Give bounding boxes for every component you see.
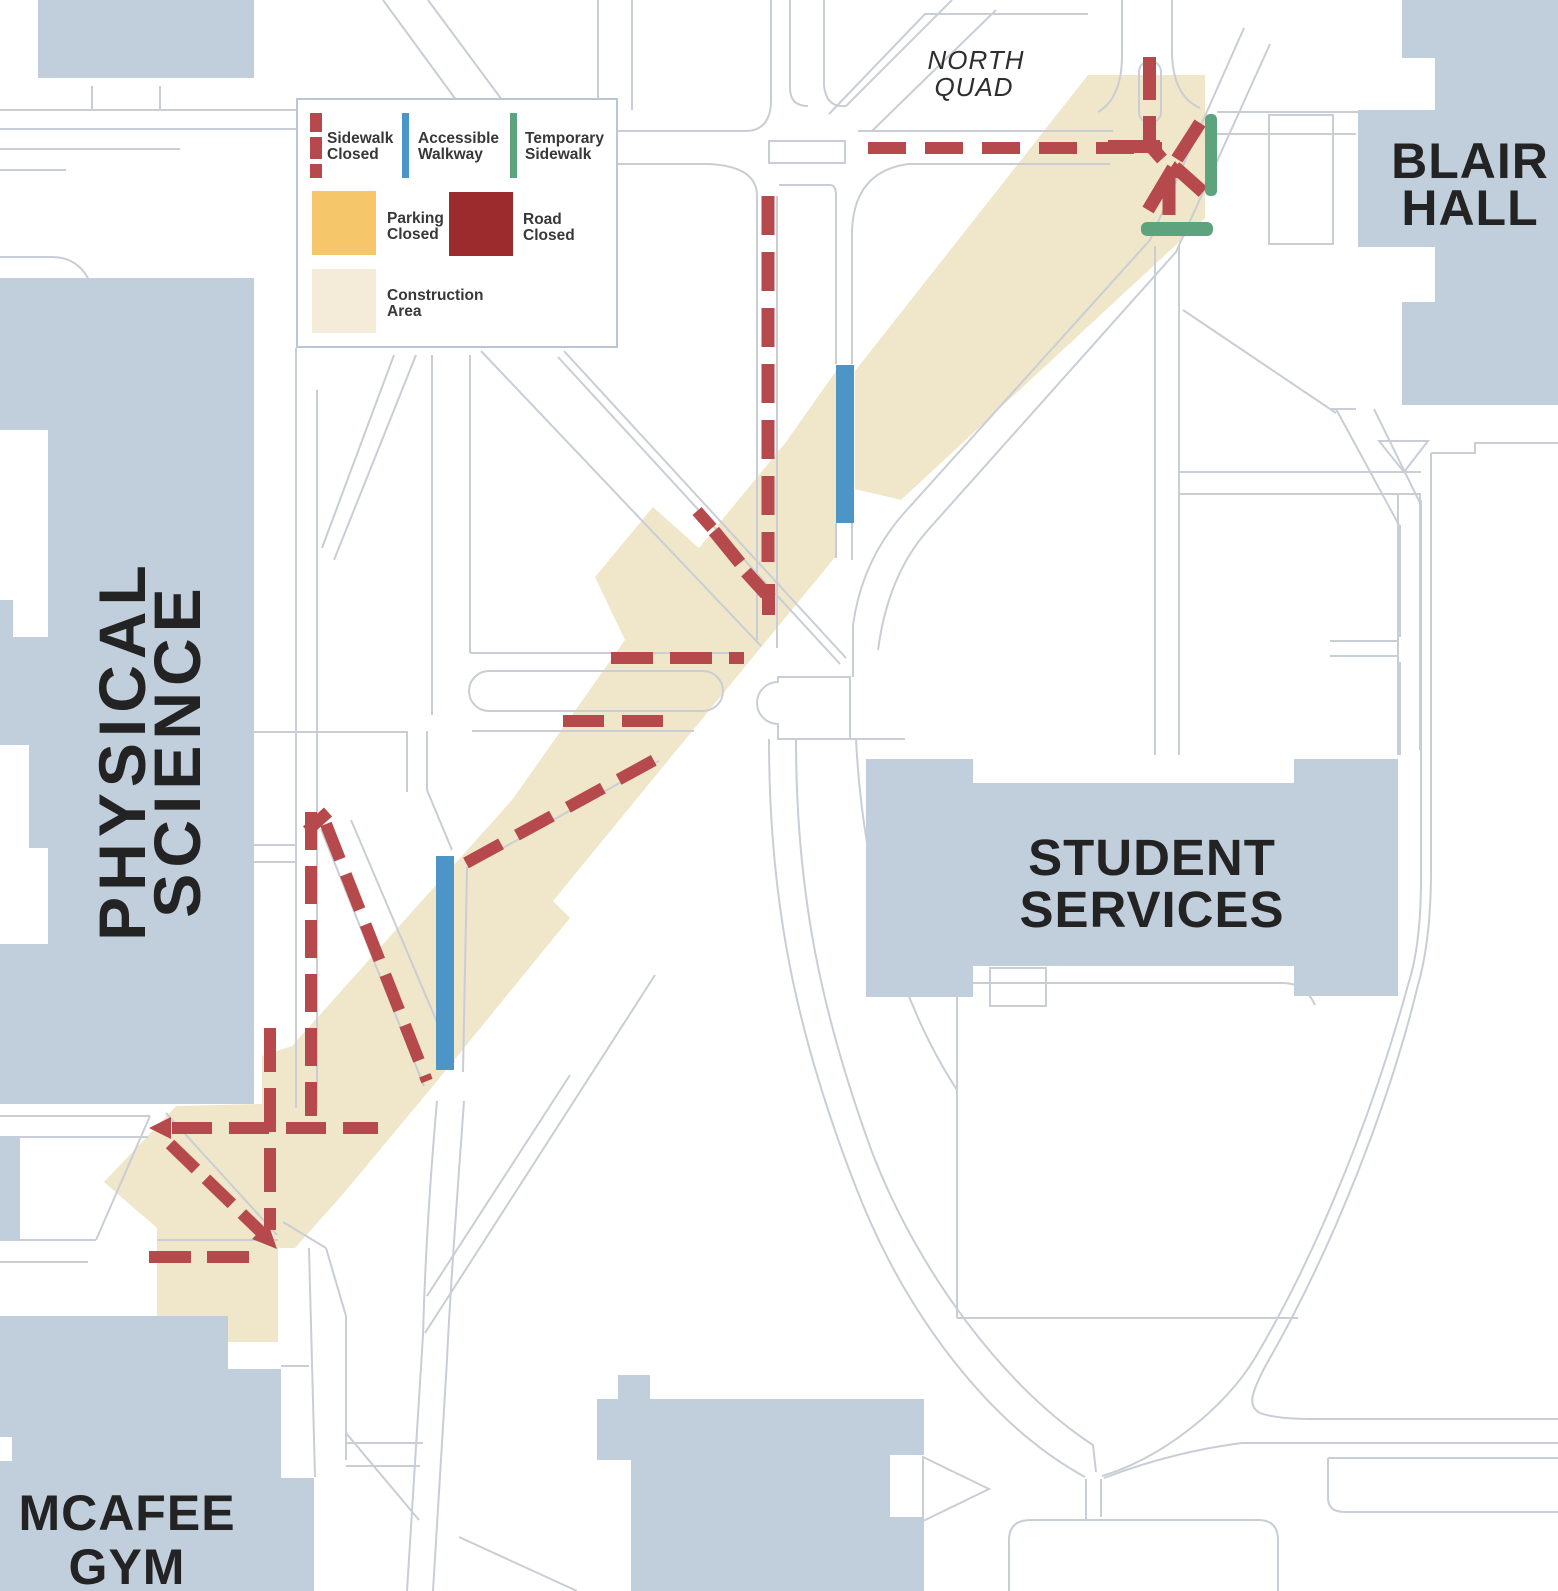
- svg-text:Area: Area: [387, 303, 422, 320]
- svg-text:MCAFEE: MCAFEE: [18, 1485, 235, 1541]
- svg-text:Temporary: Temporary: [525, 130, 604, 147]
- svg-text:Closed: Closed: [523, 227, 575, 244]
- svg-text:Construction: Construction: [387, 287, 483, 304]
- svg-text:Sidewalk: Sidewalk: [327, 130, 394, 147]
- svg-text:NORTH: NORTH: [928, 45, 1025, 75]
- svg-text:Walkway: Walkway: [418, 146, 483, 163]
- svg-text:QUAD: QUAD: [934, 72, 1013, 102]
- svg-text:Accessible: Accessible: [418, 130, 499, 147]
- svg-text:Parking: Parking: [387, 210, 444, 227]
- svg-text:Road: Road: [523, 211, 562, 228]
- svg-text:Sidewalk: Sidewalk: [525, 146, 592, 163]
- svg-text:GYM: GYM: [69, 1539, 186, 1591]
- svg-text:Closed: Closed: [327, 146, 379, 163]
- svg-text:Closed: Closed: [387, 226, 439, 243]
- svg-text:HALL: HALL: [1401, 180, 1538, 236]
- svg-text:SCIENCE: SCIENCE: [140, 582, 214, 917]
- svg-text:SERVICES: SERVICES: [1020, 881, 1285, 938]
- svg-text:STUDENT: STUDENT: [1028, 829, 1276, 886]
